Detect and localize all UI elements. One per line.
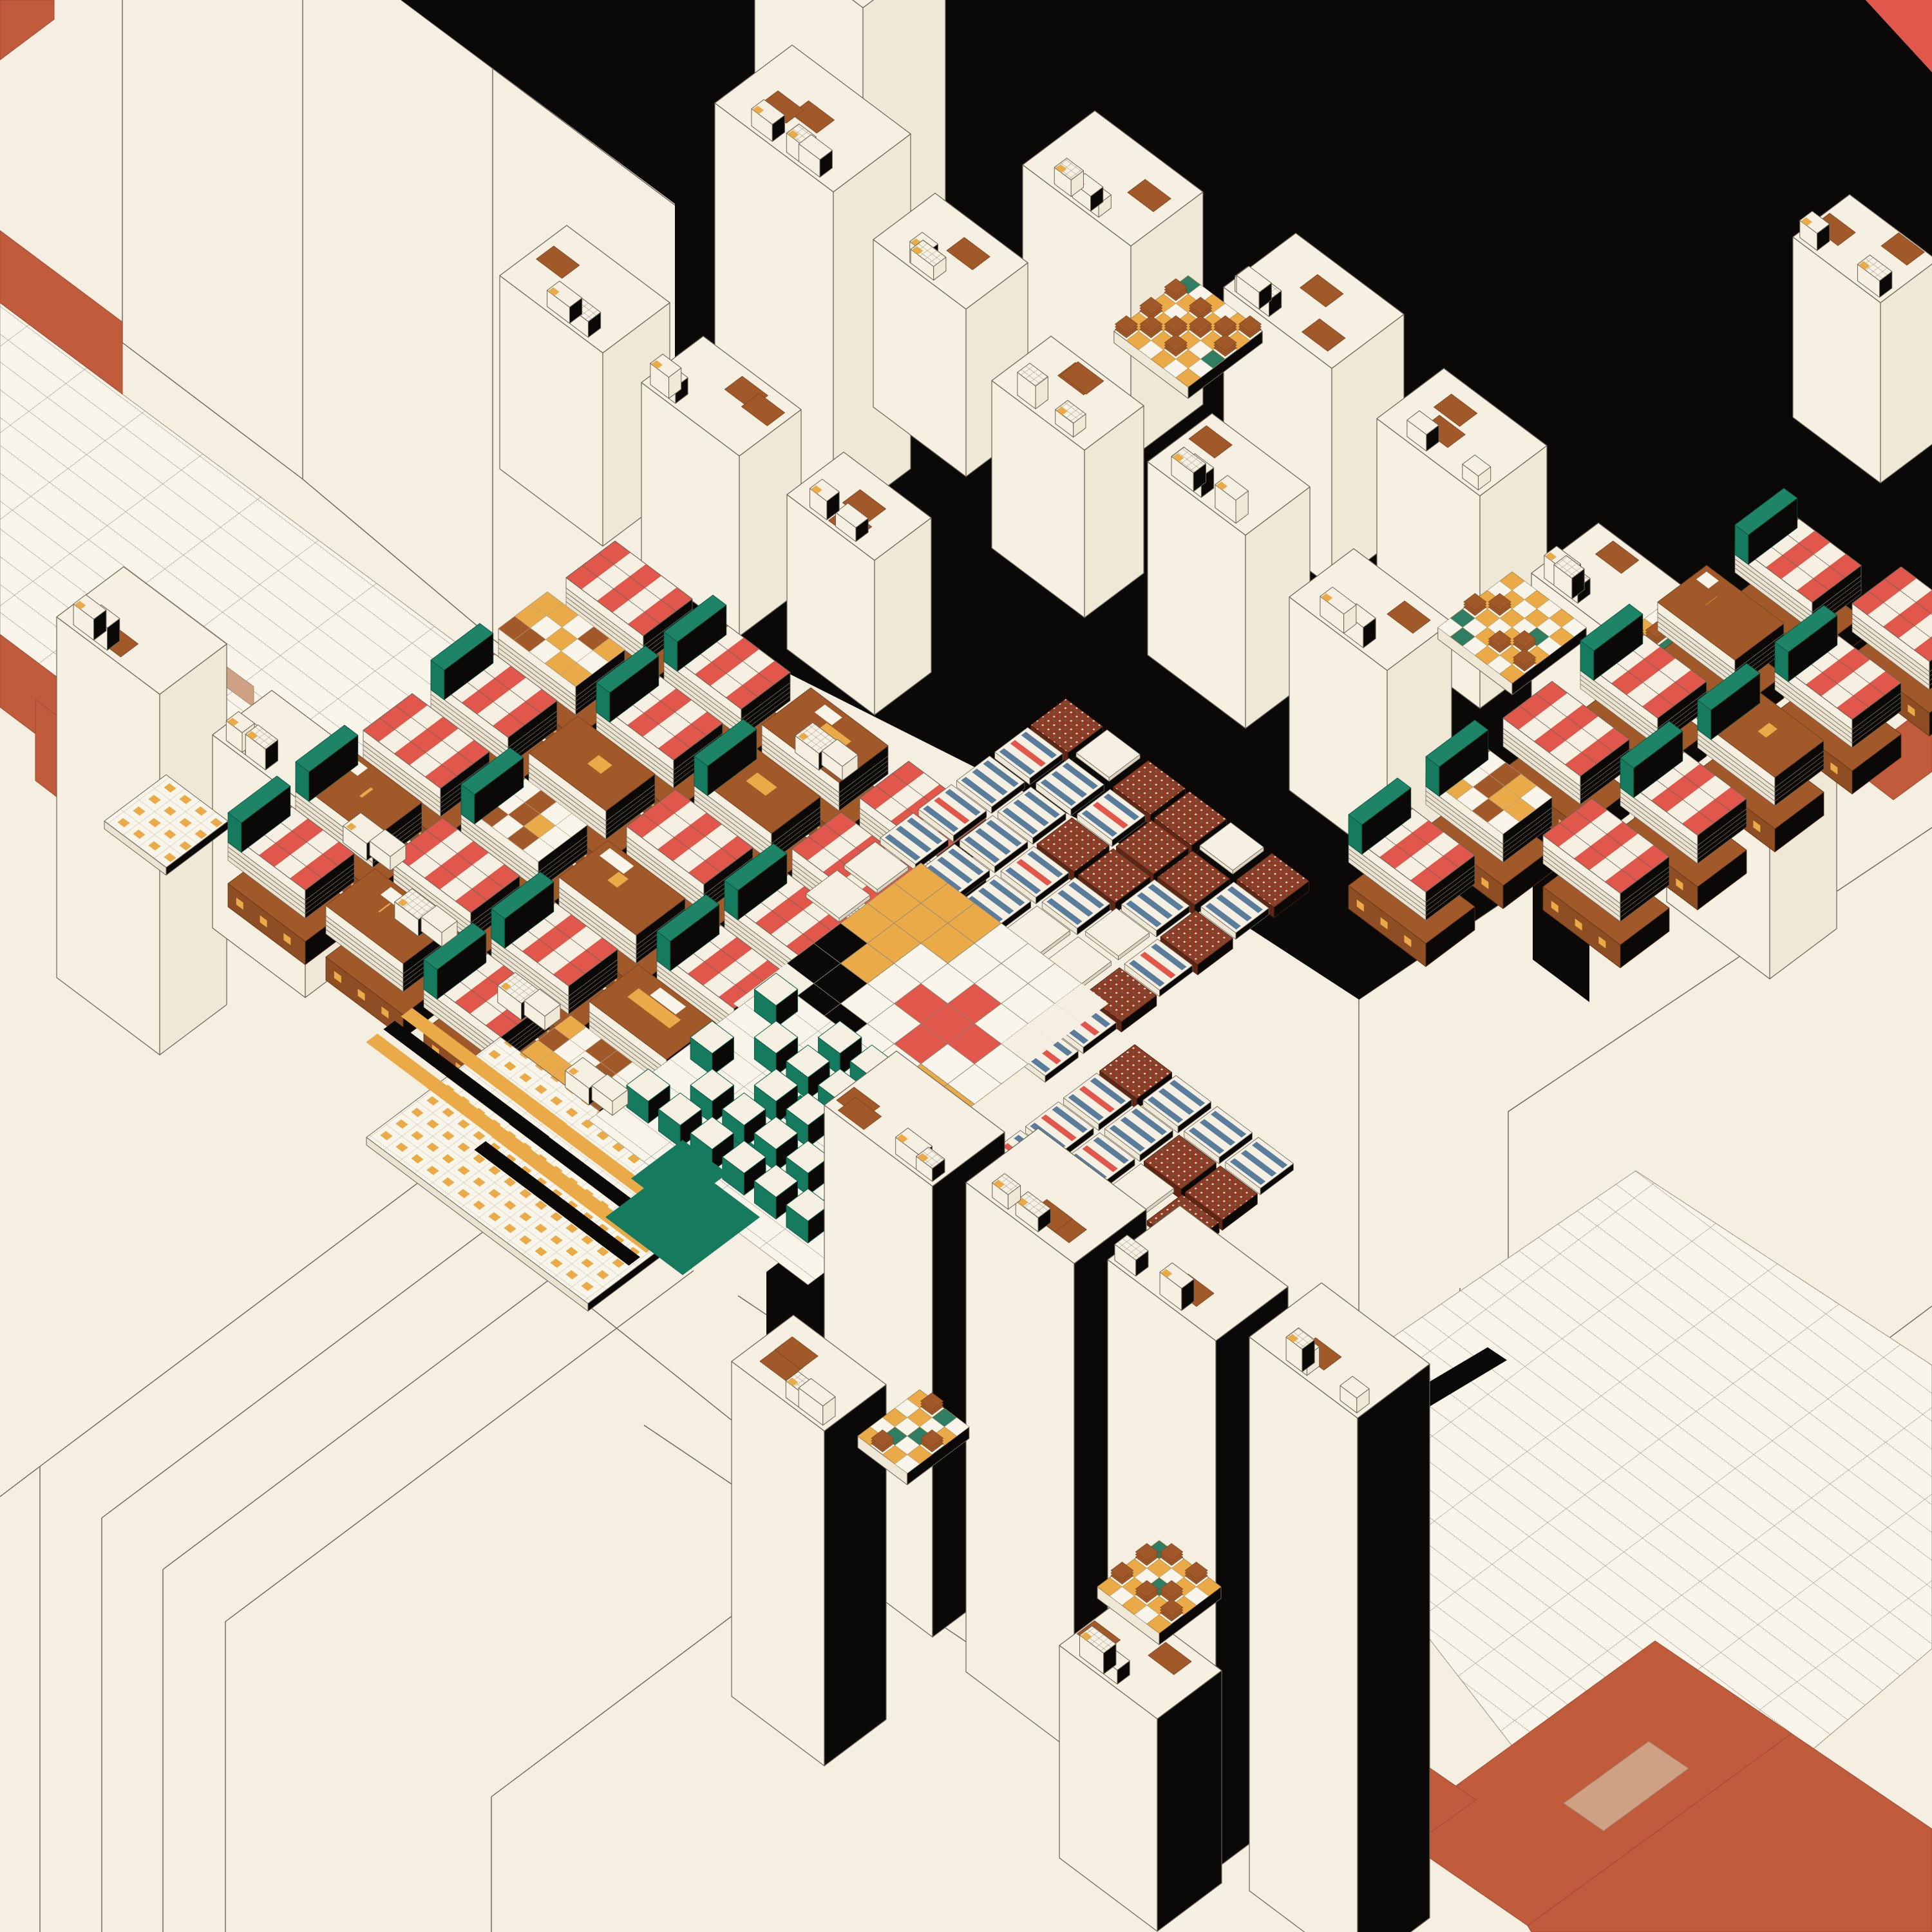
isometric-cityscape-canvas <box>0 0 1932 1932</box>
tower <box>1249 1283 1430 1932</box>
isometric-artwork-stage <box>0 0 1932 1932</box>
tower <box>732 1315 886 1766</box>
